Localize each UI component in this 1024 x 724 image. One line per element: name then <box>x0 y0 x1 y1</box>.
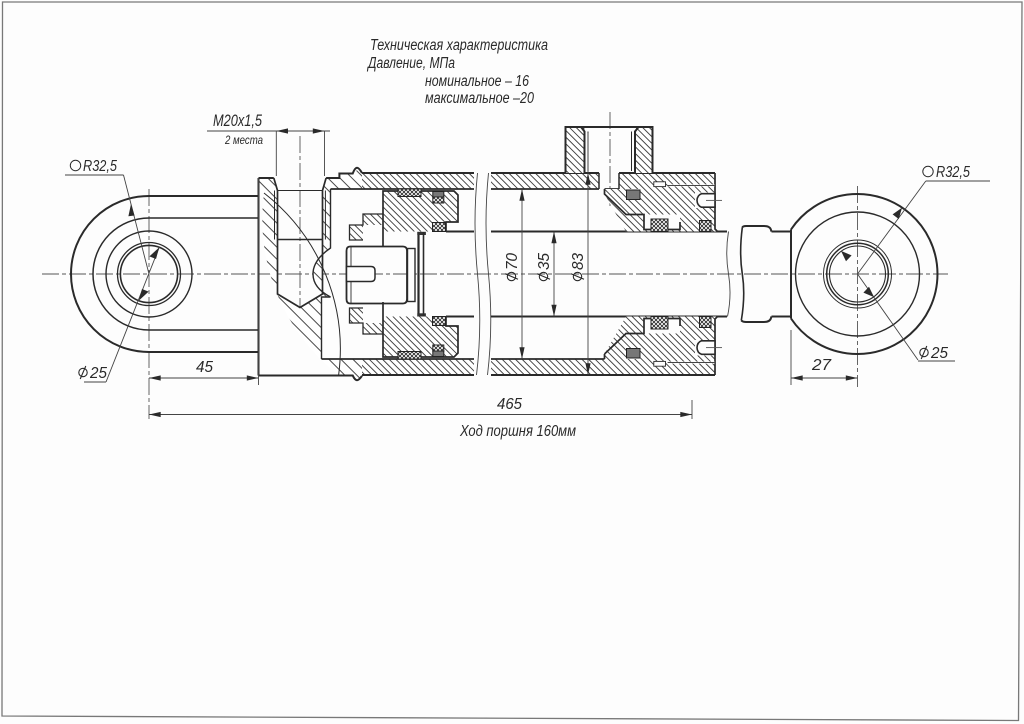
svg-text:Давление, МПа: Давление, МПа <box>366 55 455 72</box>
svg-text:Техническая характеристика: Техническая характеристика <box>370 37 548 54</box>
svg-text:25: 25 <box>930 345 948 362</box>
svg-text:70: 70 <box>504 253 521 270</box>
svg-text:M20x1,5: M20x1,5 <box>213 111 262 130</box>
svg-text:465: 465 <box>497 396 522 413</box>
svg-text:R32,5: R32,5 <box>83 158 117 175</box>
svg-text:27: 27 <box>811 357 833 374</box>
svg-text:25: 25 <box>89 365 107 382</box>
svg-text:35: 35 <box>536 253 553 270</box>
svg-text:Ход поршня 160мм: Ход поршня 160мм <box>459 423 576 440</box>
svg-text:45: 45 <box>196 359 213 376</box>
svg-text:номинальное – 16: номинальное – 16 <box>425 73 529 90</box>
svg-text:2 места: 2 места <box>224 135 263 147</box>
svg-text:83: 83 <box>570 253 587 270</box>
svg-text:R32,5: R32,5 <box>936 164 970 181</box>
svg-text:максимальное –20: максимальное –20 <box>425 90 534 107</box>
